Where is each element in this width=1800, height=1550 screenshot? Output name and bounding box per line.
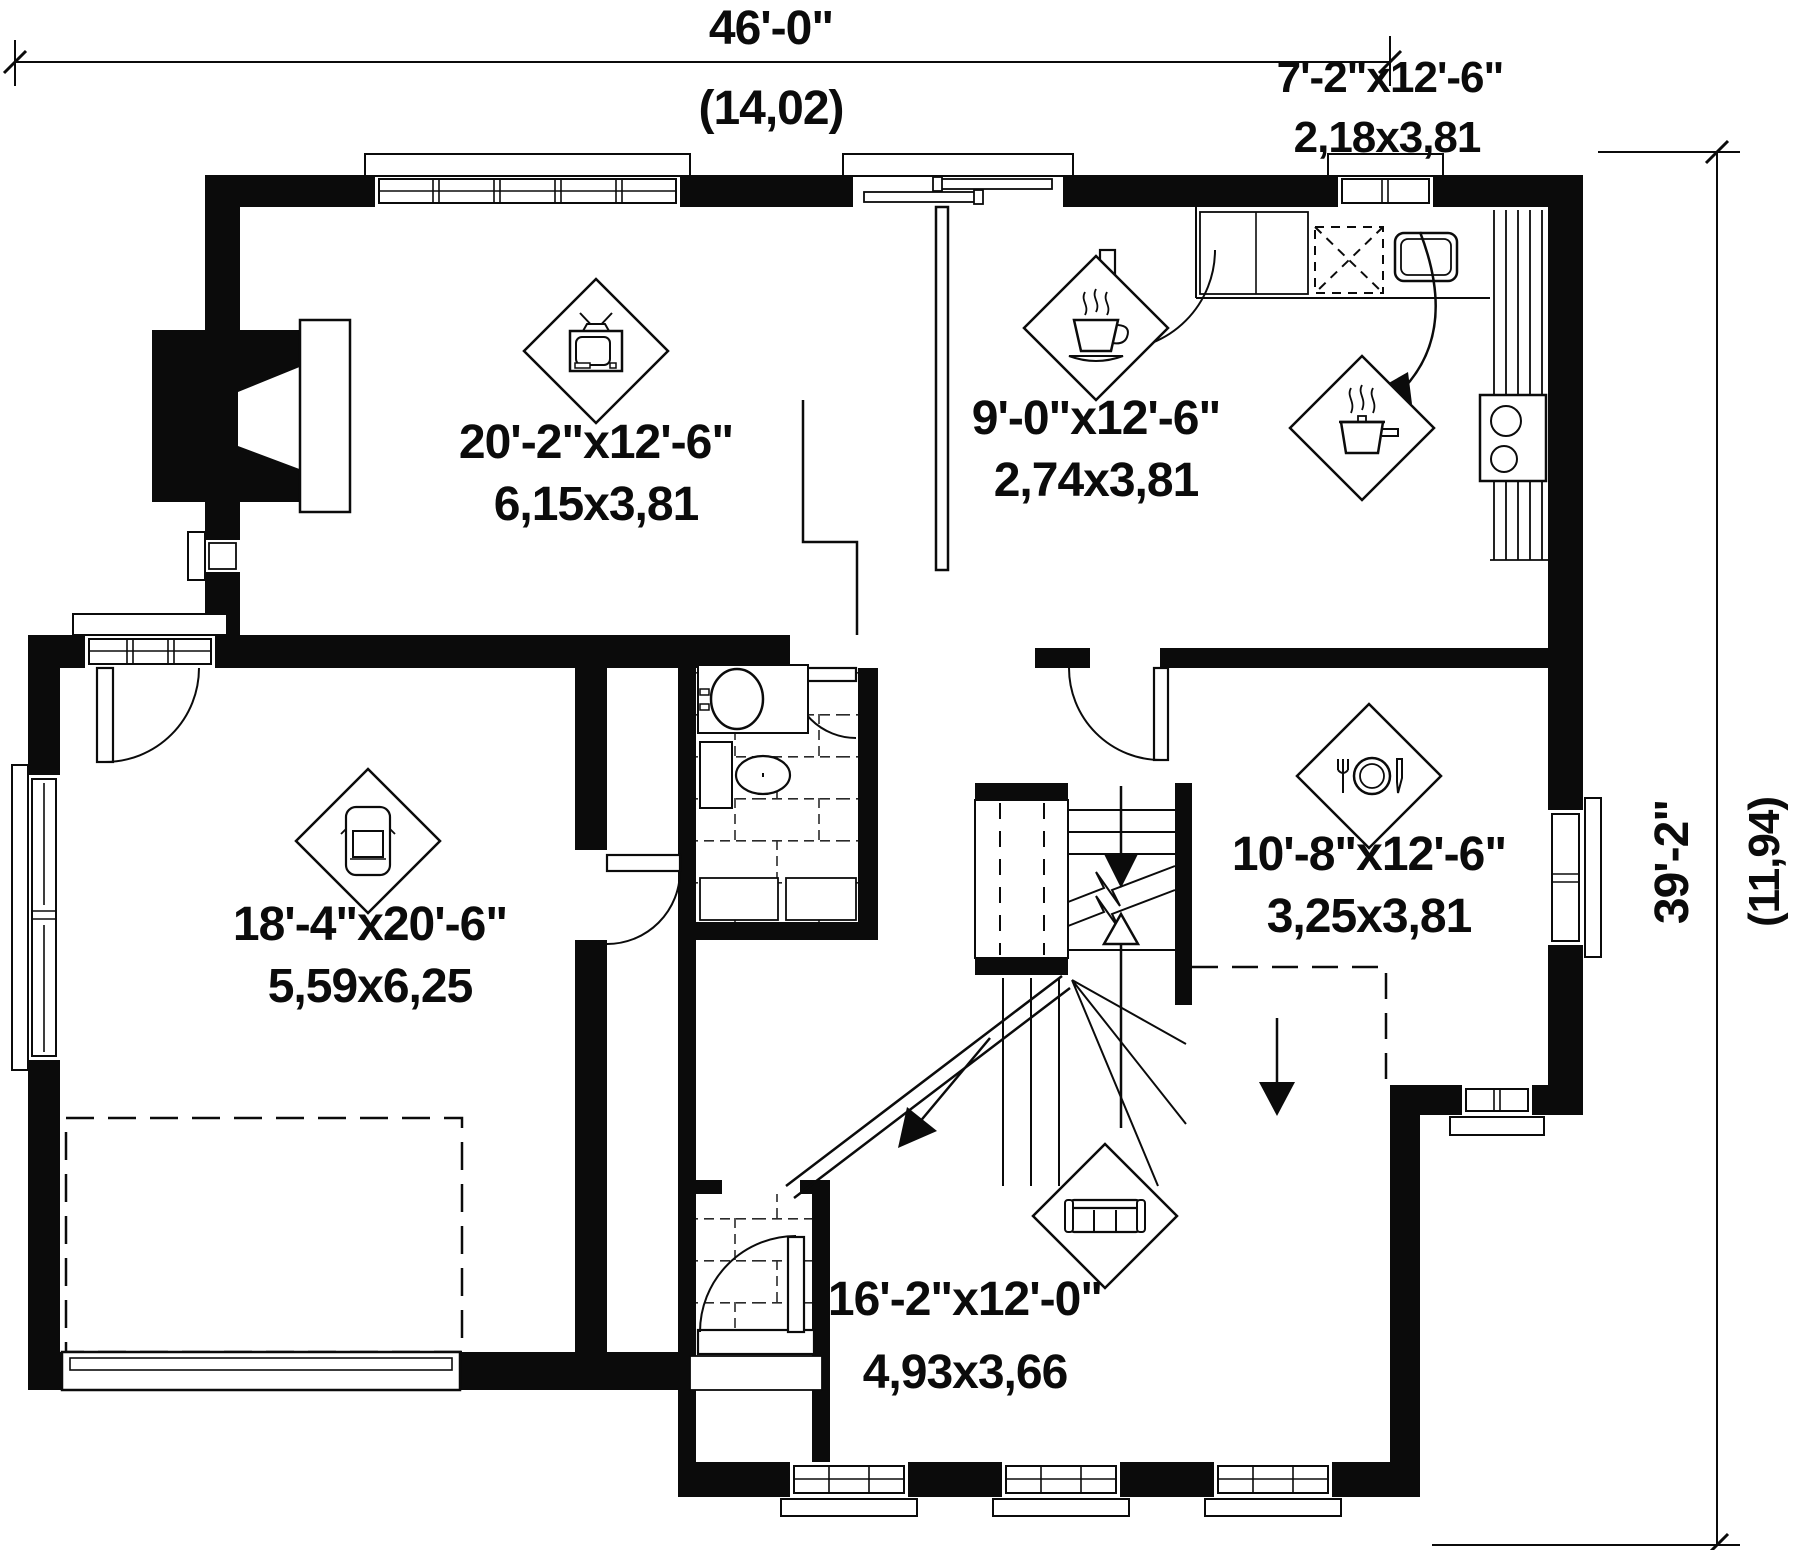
label-kitchen-imperial: 7'-2"x12'-6" — [1277, 53, 1504, 102]
windows-living-room — [781, 1466, 1341, 1516]
toilet-tank — [700, 742, 732, 808]
coffee-cup-icon — [1024, 256, 1168, 400]
window-family-room — [365, 154, 690, 203]
counter-cabinets — [1490, 210, 1548, 560]
label-garage-metric: 5,59x6,25 — [268, 960, 473, 1013]
garage-door-overhead — [66, 1118, 462, 1352]
door-garage-to-hall — [607, 855, 680, 944]
ceiling-break — [1192, 967, 1386, 1085]
sofa-icon — [1033, 1144, 1177, 1288]
label-family-imperial: 20'-2"x12'-6" — [459, 416, 733, 469]
label-family-metric: 6,15x3,81 — [494, 478, 699, 531]
label-kitchen-metric: 2,18x3,81 — [1294, 113, 1481, 162]
winder-fan — [1072, 980, 1186, 1186]
stove-icon — [1480, 395, 1546, 481]
sink-icon — [711, 669, 763, 729]
shower-base — [786, 878, 856, 920]
stair-rail — [786, 976, 1070, 1198]
tub-base — [700, 878, 778, 920]
window-garage-left — [12, 765, 56, 1070]
label-breakfast-imperial: 9'-0"x12'-6" — [972, 392, 1220, 445]
dim-depth-metric: (11,94) — [1740, 797, 1789, 927]
label-dining-imperial: 10'-8"x12'-6" — [1232, 828, 1506, 881]
partitions — [803, 207, 948, 635]
tv-icon — [524, 279, 668, 423]
floor-plan-drawing: 46'-0" (14,02) 7'-2"x12'-6" 2,18x3,81 20… — [0, 0, 1800, 1550]
label-living-metric: 4,93x3,66 — [863, 1346, 1068, 1399]
dim-depth-imperial: 39'-2" — [1646, 800, 1699, 924]
door-stairs — [1069, 668, 1168, 760]
dishwasher — [1315, 227, 1383, 293]
window-dining-right — [1552, 798, 1601, 957]
car-icon — [296, 769, 440, 913]
door-garage-front — [97, 668, 199, 762]
winder-treads — [1003, 978, 1059, 1186]
label-dining-metric: 3,25x3,81 — [1267, 890, 1472, 943]
refrigerator — [1200, 212, 1308, 294]
label-breakfast-metric: 2,74x3,81 — [994, 454, 1199, 507]
up-arrow — [1104, 914, 1138, 944]
label-living-imperial: 16'-2"x12'-0" — [828, 1273, 1102, 1326]
label-garage-imperial: 18'-4"x20'-6" — [233, 898, 507, 951]
dim-width-metric: (14,02) — [698, 82, 843, 135]
dim-width-imperial: 46'-0" — [709, 2, 833, 55]
floor-plan: 46'-0" (14,02) 7'-2"x12'-6" 2,18x3,81 20… — [0, 0, 1800, 1550]
window-garage-top — [73, 614, 227, 664]
plate-cutlery-icon — [1297, 704, 1441, 848]
